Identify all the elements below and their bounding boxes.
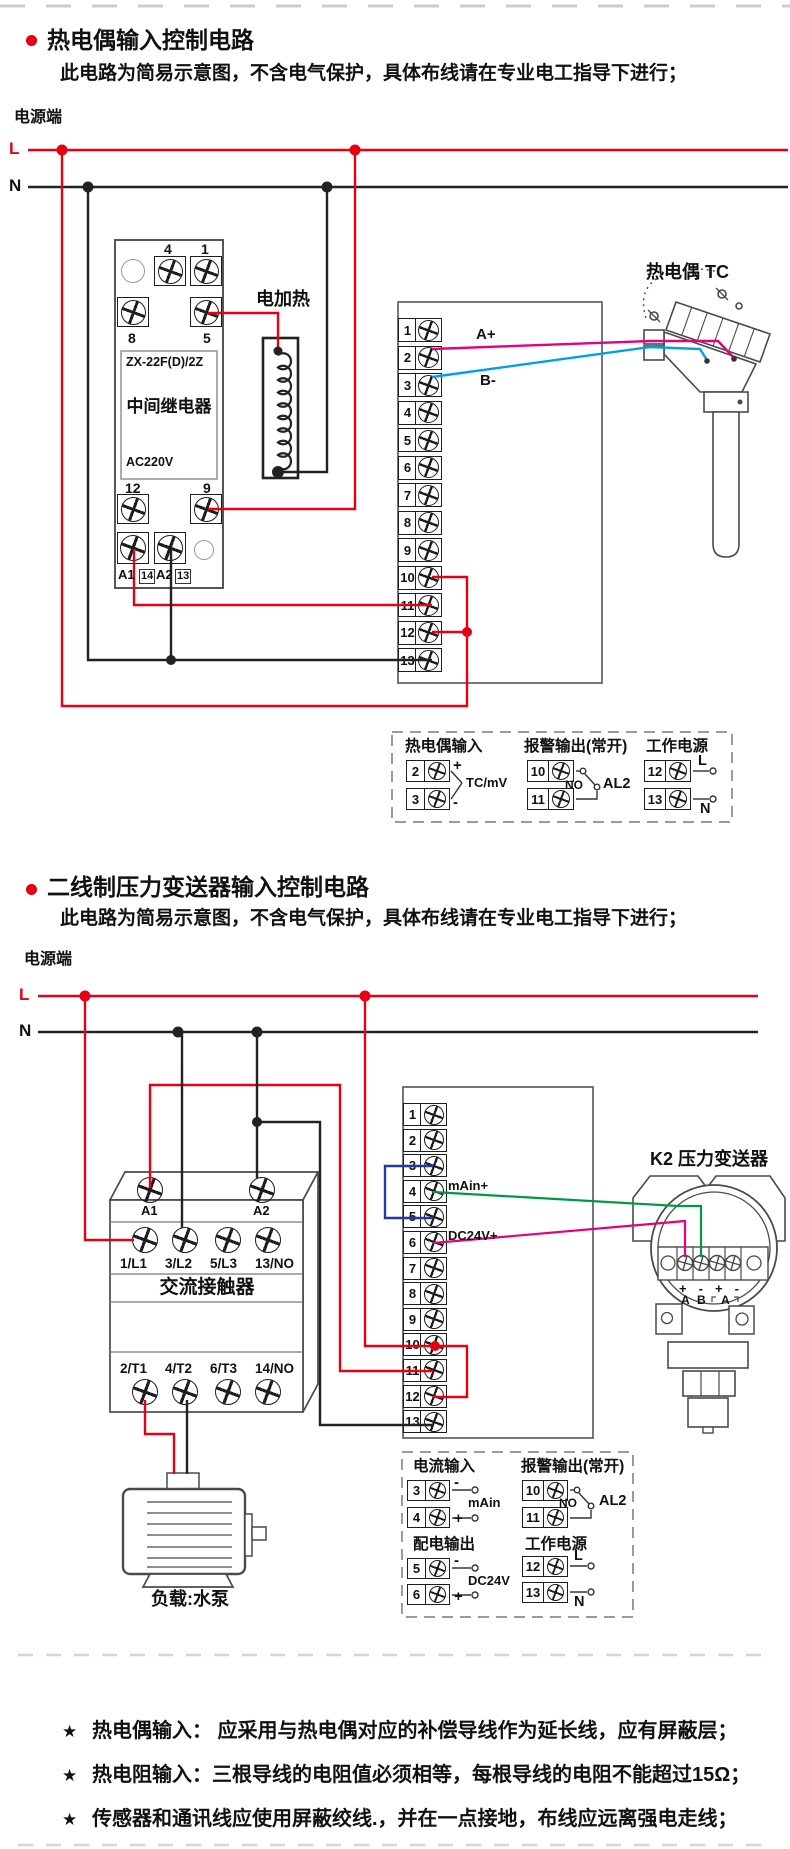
contactor-terminal-label: 14/NO: [255, 1361, 294, 1376]
terminal-number: 4: [403, 1180, 422, 1203]
legend2-screw: [425, 1507, 450, 1528]
section2-subtitle: 此电路为简易示意图，不含电气保护，具体布线请在专业电工指导下进行；: [60, 908, 687, 930]
legend1-screw: [424, 760, 450, 782]
contactor-terminal-label: 13/NO: [255, 1256, 294, 1271]
terminal-row: 10: [403, 1333, 447, 1356]
legend1-terminal-2: 2: [406, 760, 425, 782]
contactor-screw-a1: [137, 1177, 163, 1203]
terminal-number: 8: [398, 511, 417, 535]
relay-voltage-label: AC220V: [126, 455, 173, 469]
terminal-row: 5: [403, 1205, 447, 1228]
terminal-row: 8: [403, 1282, 447, 1305]
relay-13-label: 13: [175, 569, 191, 584]
terminal-number: 7: [398, 483, 417, 507]
terminal-number: 10: [398, 566, 417, 590]
terminal-screw: [415, 538, 442, 562]
transmitter-label: K2 压力变送器: [650, 1149, 768, 1170]
contactor-terminal-label: 1/L1: [120, 1256, 147, 1271]
wire-b-minus-label: B-: [480, 372, 496, 389]
section1-line-l-label: L: [9, 139, 19, 159]
pump-motor: [123, 1473, 266, 1587]
terminal-number: 5: [398, 428, 417, 452]
terminal-screw: [415, 566, 442, 590]
thermocouple-label: 热电偶 TC: [646, 262, 729, 283]
legend1-terminal-13: 13: [644, 788, 666, 810]
contactor-terminal-label: 3/L2: [165, 1256, 192, 1271]
terminal-row: 2: [398, 346, 442, 370]
contactor-top-labels: 1/L13/L25/L313/NO: [120, 1256, 294, 1271]
contactor-screw-13no: [255, 1227, 281, 1253]
terminal-number: 7: [403, 1257, 422, 1280]
footnote-2: 热电阻输入：三根导线的电阻值必须相等，每根导线的电阻不能超过15Ω；: [92, 1764, 750, 1787]
heater: [263, 338, 298, 478]
legend2-terminal-13: 13: [522, 1582, 544, 1603]
terminal-screw: [420, 1257, 447, 1280]
legend2-dist-plus: +: [454, 1588, 463, 1605]
relay-indicator-2: [194, 540, 214, 560]
transmitter-meter-label: A: [721, 1294, 730, 1308]
legend1-tcmv-label: TC/mV: [466, 776, 507, 791]
footnote-1: 热电偶输入： 应采用与热电偶对应的补偿导线作为延长线，应有屏蔽层；: [92, 1720, 738, 1743]
relay-terminal-5-label: 5: [203, 330, 211, 346]
contactor-terminal-label: 4/T2: [165, 1361, 192, 1376]
terminal-row: 13: [403, 1410, 447, 1433]
legend2-terminal-4: 4: [407, 1507, 426, 1528]
legend2-screw: [425, 1584, 450, 1605]
terminal-row: 9: [403, 1308, 447, 1331]
terminal-screw: [415, 401, 442, 425]
legend1-plus-sign: +: [453, 757, 462, 774]
section1-title: 热电偶输入控制电路: [47, 27, 254, 53]
terminal-number: 8: [403, 1282, 422, 1305]
legend1-tc-input-title: 热电偶输入: [405, 738, 483, 756]
relay-screw-1: [190, 256, 222, 286]
terminal-screw: [420, 1205, 447, 1228]
contactor-terminal-label: 6/T3: [210, 1361, 237, 1376]
legend1-terminal-10: 10: [527, 760, 549, 782]
terminal-row: 11: [398, 593, 442, 617]
legend2-screw: [425, 1480, 450, 1501]
contactor-name-label: 交流接触器: [118, 1277, 296, 1299]
terminal-row: 9: [398, 538, 442, 562]
wire-main-plus-label: mAin+: [448, 1179, 488, 1194]
legend1-n-label: N: [700, 801, 710, 818]
terminal-strip-1: 1 2 3 4 5 6 7 8 9 10 11 12 13: [398, 318, 442, 672]
legend2-dc24v-label: DC24V: [468, 1574, 510, 1589]
section2-line-l-label: L: [19, 985, 29, 1005]
terminal-screw: [415, 648, 442, 672]
contactor-screw-4t2: [172, 1379, 198, 1405]
wire-a-plus-label: A+: [476, 326, 496, 343]
legend2-screw: [543, 1582, 568, 1603]
wire-dc24v-label: DC24V+: [448, 1229, 498, 1244]
legend1-l-label: L: [698, 753, 707, 770]
footnote-star-icon: ★: [62, 1810, 77, 1830]
legend2-main-label: mAin: [468, 1496, 501, 1511]
terminal-screw: [420, 1385, 447, 1408]
contactor-terminal-label: 2/T1: [120, 1361, 147, 1376]
legend2-plus-sign: +: [454, 1510, 463, 1527]
legend2-terminal-6: 6: [407, 1584, 426, 1605]
terminal-screw: [420, 1129, 447, 1152]
legend2-al2-label: AL2: [599, 1493, 626, 1510]
contactor-a1-label: A1: [141, 1204, 158, 1219]
relay-screw-8: [117, 297, 149, 327]
terminal-screw: [415, 511, 442, 535]
terminal-number: 2: [403, 1129, 422, 1152]
terminal-screw: [420, 1154, 447, 1177]
transmitter-a-label: A: [681, 1294, 690, 1308]
terminal-number: 3: [398, 373, 417, 397]
section1-line-n-label: N: [9, 176, 21, 196]
contactor-terminal-label: 5/L3: [210, 1256, 237, 1271]
terminal-row: 4: [403, 1180, 447, 1203]
contactor-screw-1l1: [132, 1227, 158, 1253]
legend1-screw: [665, 788, 691, 810]
terminal-screw: [420, 1333, 447, 1356]
legend2-n-label: N: [574, 1594, 584, 1611]
terminal-number: 13: [398, 648, 417, 672]
terminal-number: 2: [398, 346, 417, 370]
terminal-strip-2: 1 2 3 4 5 6 7 8 9 10 11 12 13: [403, 1103, 447, 1433]
relay-terminal-1-label: 1: [201, 241, 209, 257]
relay-screw-a2: [154, 532, 186, 564]
terminal-number: 12: [398, 621, 417, 645]
terminal-row: 7: [398, 483, 442, 507]
footnote-star-icon: ★: [62, 1722, 77, 1742]
legend2-no-label: NO: [559, 1497, 577, 1511]
transmitter-b-label: B: [697, 1294, 706, 1308]
terminal-number: 5: [403, 1205, 422, 1228]
terminal-screw: [415, 373, 442, 397]
contactor-bottom-labels: 2/T14/T26/T314/NO: [120, 1361, 294, 1376]
terminal-number: 6: [398, 456, 417, 480]
terminal-screw: [415, 456, 442, 480]
terminal-row: 6: [398, 456, 442, 480]
terminal-screw: [415, 483, 442, 507]
section1-power-label: 电源端: [14, 109, 62, 127]
terminal-number: 1: [403, 1103, 422, 1126]
terminal-row: 13: [398, 648, 442, 672]
relay-screw-12: [117, 494, 149, 524]
footnote-3: 传感器和通讯线应使用屏蔽绞线.，并在一点接地，布线应远离强电走线；: [92, 1808, 738, 1831]
legend2-screw: [425, 1558, 450, 1579]
terminal-screw: [415, 428, 442, 452]
terminal-number: 9: [403, 1308, 422, 1331]
legend2-minus-sign: -: [454, 1474, 459, 1491]
legend1-minus-sign: -: [453, 794, 458, 811]
relay-terminal-9-label: 9: [203, 480, 211, 496]
terminal-number: 6: [403, 1231, 422, 1254]
terminal-screw: [420, 1180, 447, 1203]
contactor-screw-14no: [255, 1379, 281, 1405]
terminal-screw: [415, 346, 442, 370]
terminal-row: 7: [403, 1257, 447, 1280]
thermocouple: [644, 269, 770, 557]
terminal-row: 3: [398, 373, 442, 397]
terminal-number: 13: [403, 1410, 422, 1433]
terminal-row: 2: [403, 1129, 447, 1152]
legend2-l-label: L: [574, 1548, 583, 1565]
terminal-row: 3: [403, 1154, 447, 1177]
terminal-row: 10: [398, 566, 442, 590]
relay-screw-4: [154, 256, 186, 286]
legend1-screw: [424, 788, 450, 810]
terminal-row: 11: [403, 1359, 447, 1382]
heater-label: 电加热: [256, 289, 310, 310]
legend2-terminal-10: 10: [522, 1480, 544, 1501]
pump-load-label: 负载:水泵: [151, 1589, 229, 1610]
relay-terminal-4-label: 4: [164, 241, 172, 257]
terminal-row: 4: [398, 401, 442, 425]
section1-subtitle: 此电路为简易示意图，不含电气保护，具体布线请在专业电工指导下进行；: [60, 63, 687, 85]
legend1-screw: [665, 760, 691, 782]
terminal-number: 9: [398, 538, 417, 562]
contactor-a2-label: A2: [253, 1204, 270, 1219]
terminal-row: 5: [398, 428, 442, 452]
relay-screw-9: [190, 494, 222, 524]
contactor-screw-2t1: [132, 1379, 158, 1405]
terminal-row: 12: [403, 1385, 447, 1408]
terminal-screw: [415, 621, 442, 645]
contactor-screw-5l3: [215, 1227, 241, 1253]
terminal-screw: [420, 1359, 447, 1382]
pressure-transmitter: [633, 1176, 785, 1433]
terminal-number: 11: [398, 593, 417, 617]
relay-terminal-12-label: 12: [125, 480, 141, 496]
relay-indicator: [121, 259, 145, 283]
section2-power-label: 电源端: [24, 951, 72, 969]
terminal-screw: [420, 1410, 447, 1433]
terminal-number: 3: [403, 1154, 422, 1177]
legend2-alarm-title: 报警输出(常开): [521, 1458, 624, 1476]
section2-line-n-label: N: [19, 1021, 31, 1041]
terminal-screw: [415, 593, 442, 617]
section1-bullet-icon: [26, 35, 37, 46]
relay-terminal-8-label: 8: [128, 330, 136, 346]
terminal-screw: [420, 1103, 447, 1126]
section2-bullet-icon: [26, 884, 37, 895]
terminal-screw: [420, 1308, 447, 1331]
contactor-screw-6t3: [215, 1379, 241, 1405]
terminal-screw: [420, 1231, 447, 1254]
legend1-al2-label: AL2: [603, 776, 630, 793]
terminal-number: 4: [398, 401, 417, 425]
relay-name-label: 中间继电器: [121, 397, 217, 417]
terminal-row: 8: [398, 511, 442, 535]
section2-title: 二线制压力变送器输入控制电路: [47, 874, 369, 900]
terminal-row: 1: [403, 1103, 447, 1126]
terminal-screw: [420, 1282, 447, 1305]
legend2-screw: [543, 1556, 568, 1577]
legend2-terminal-5: 5: [407, 1558, 426, 1579]
legend1-terminal-11: 11: [527, 788, 549, 810]
relay-14-label: 14: [139, 569, 155, 584]
relay-a2-label: A2: [156, 568, 173, 583]
contactor-screw-a2: [249, 1177, 275, 1203]
legend1-terminal-3: 3: [406, 788, 425, 810]
legend1-terminal-12: 12: [644, 760, 666, 782]
legend2-dist-minus: -: [454, 1552, 459, 1569]
terminal-number: 10: [403, 1333, 422, 1356]
legend1-no-label: NO: [565, 779, 583, 793]
legend1-alarm-title: 报警输出(常开): [524, 738, 627, 756]
terminal-row: 6: [403, 1231, 447, 1254]
wiring-document-page: 热电偶输入控制电路 此电路为简易示意图，不含电气保护，具体布线请在专业电工指导下…: [0, 0, 790, 1849]
terminal-row: 12: [398, 621, 442, 645]
transmitter-sign: -: [735, 1281, 739, 1296]
footnote-star-icon: ★: [62, 1766, 77, 1786]
legend2-terminal-3: 3: [407, 1480, 426, 1501]
relay-model-label: ZX-22F(D)/2Z: [126, 355, 203, 369]
relay-screw-a1: [117, 532, 149, 564]
terminal-number: 11: [403, 1359, 422, 1382]
terminal-screw: [415, 318, 442, 342]
contactor-screw-3l2: [172, 1227, 198, 1253]
terminal-number: 1: [398, 318, 417, 342]
terminal-number: 12: [403, 1385, 422, 1408]
legend2-current-title: 电流输入: [413, 1458, 475, 1476]
legend2-dist-title: 配电输出: [413, 1536, 475, 1554]
relay-screw-5: [190, 297, 222, 327]
legend2-terminal-11: 11: [522, 1507, 544, 1528]
legend2-terminal-12: 12: [522, 1556, 544, 1577]
relay-a1-label: A1: [118, 568, 135, 583]
terminal-row: 1: [398, 318, 442, 342]
